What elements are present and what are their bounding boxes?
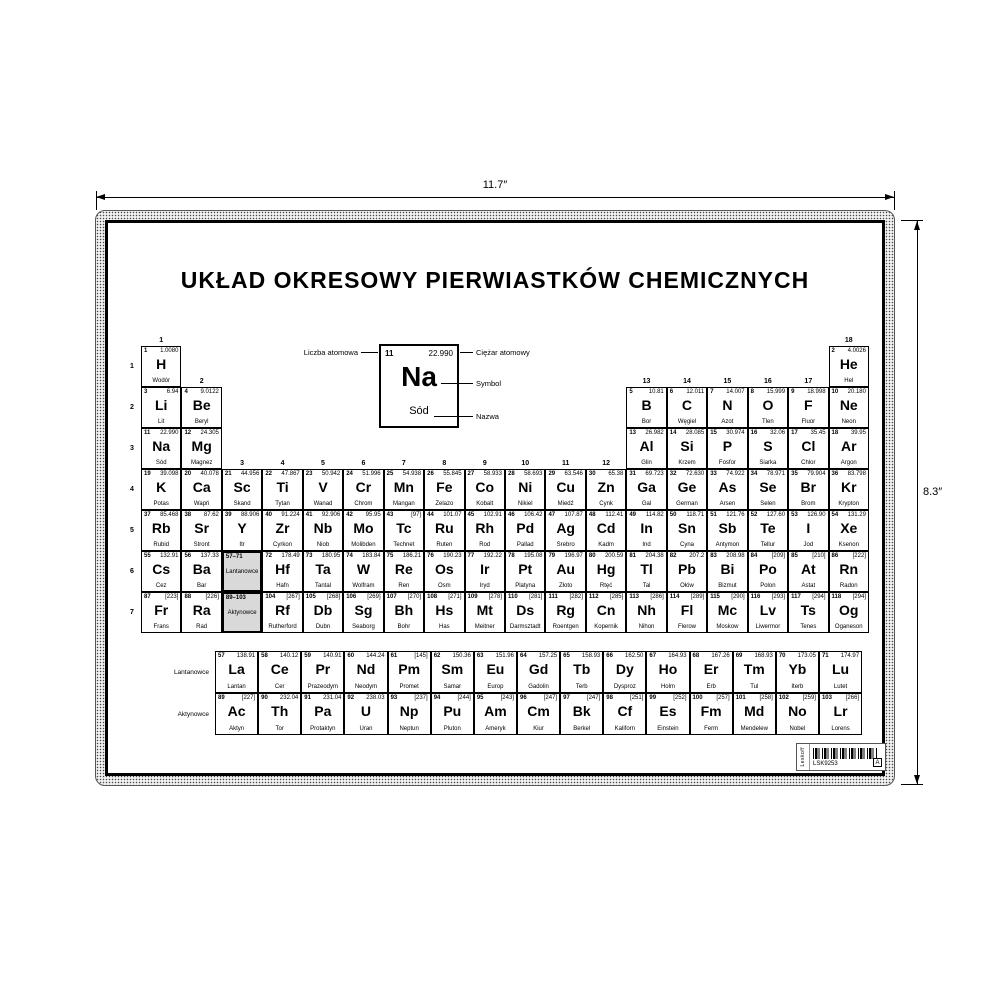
element-Pd: 46106.42PdPallad (505, 510, 545, 551)
atomic-mass: [270] (408, 594, 421, 601)
atomic-mass: [267] (286, 594, 299, 601)
element-name: Wodór (142, 377, 180, 386)
footer-label-box: Leskoff LSK9253 A (796, 743, 886, 771)
atomic-number: 112 (589, 594, 599, 601)
atomic-mass: [278] (489, 594, 502, 601)
element-name: Oganeson (830, 623, 868, 632)
element-name: Iryd (466, 582, 504, 591)
element-header: 53126.90 (789, 511, 827, 519)
element-name: Tellur (749, 541, 787, 550)
element-header: 48112.41 (587, 511, 625, 519)
element-symbol: Bk (561, 703, 602, 719)
element-header: 103[266] (820, 694, 861, 702)
element-symbol: Ce (259, 661, 300, 677)
element-Ho: 67164.93HoHolm (646, 651, 689, 693)
element-header: 94[244] (432, 694, 473, 702)
atomic-number: 27 (468, 471, 475, 478)
element-Gd: 64157.25GdGadolin (517, 651, 560, 693)
atomic-mass: 168.93 (754, 653, 772, 660)
atomic-number: 6 (670, 389, 673, 396)
atomic-number: 5 (629, 389, 632, 396)
element-symbol: H (142, 356, 180, 372)
element-header: 86[222] (830, 552, 868, 560)
element-symbol: Kr (830, 479, 868, 495)
atomic-number: 78 (508, 553, 515, 560)
atomic-mass: 58.693 (524, 471, 542, 478)
element-name: Dysproz (604, 683, 645, 692)
element-header: 65158.93 (561, 652, 602, 660)
element-Ir: 77192.22IrIryd (465, 551, 505, 592)
element-header: 89[227] (216, 694, 257, 702)
atomic-mass: [285] (610, 594, 623, 601)
element-header: 58140.12 (259, 652, 300, 660)
barcode (813, 748, 877, 759)
atomic-number: 98 (606, 695, 613, 702)
element-header: 102[259] (777, 694, 818, 702)
element-name: Prazeodym (302, 683, 343, 692)
element-In: 49114.82InInd (626, 510, 666, 551)
dimension-width-label: 11.7″ (455, 179, 535, 191)
element-symbol: Gd (518, 661, 559, 677)
atomic-mass: 74.922 (726, 471, 744, 478)
element-name: Neon (830, 418, 868, 427)
element-symbol: Es (647, 703, 688, 719)
series-row-aktynowce: Aktynowce89[227]AcAktyn90232.04ThTor9123… (128, 693, 862, 735)
element-symbol: Ge (668, 479, 706, 495)
element-symbol: W (344, 561, 382, 577)
group-number-9: 9 (465, 428, 505, 469)
atomic-number: 54 (832, 512, 839, 519)
atomic-number: 115 (710, 594, 720, 601)
group-number-6: 6 (343, 428, 383, 469)
element-name: Potas (142, 500, 180, 509)
element-name: Mangan (385, 500, 423, 509)
element-Zn: 3065.38ZnCynk (586, 469, 626, 510)
element-name: Platyna (506, 582, 544, 591)
element-Pb: 82207.2PbOłów (667, 551, 707, 592)
element-Tb: 65158.93TbTerb (560, 651, 603, 693)
element-symbol: Pd (506, 520, 544, 536)
element-symbol: Nd (345, 661, 386, 677)
element-symbol: Ac (216, 703, 257, 719)
element-symbol: Hs (425, 602, 463, 618)
atomic-mass: 174.97 (841, 653, 859, 660)
atomic-mass: 26.982 (645, 430, 663, 437)
element-Kr: 3683.798KrKrypton (829, 469, 869, 510)
atomic-number: 59 (304, 653, 311, 660)
element-symbol: Cu (546, 479, 584, 495)
element-symbol: Pm (389, 661, 430, 677)
atomic-mass: 131.29 (848, 512, 866, 519)
atomic-number: 49 (629, 512, 636, 519)
atomic-number: 64 (520, 653, 527, 660)
element-header: 24.0026 (830, 347, 868, 355)
element-name: Tenes (789, 623, 827, 632)
series-cells: 57138.91LaLantan58140.12CeCer59140.91PrP… (215, 651, 862, 693)
element-S: 1632.06SSiarka (748, 428, 788, 469)
element-Al: 1326.982AlGlin (626, 428, 666, 469)
atomic-mass: 140.12 (280, 653, 298, 660)
element-Au: 79196.97AuZłoto (545, 551, 585, 592)
atomic-mass: 85.468 (160, 512, 178, 519)
element-symbol: Cl (789, 438, 827, 454)
element-symbol: Cm (518, 703, 559, 719)
element-name: Ołów (668, 582, 706, 591)
element-Y: 3988.906YItr (222, 510, 262, 551)
atomic-number: 93 (391, 695, 398, 702)
atomic-mass: 54.938 (403, 471, 421, 478)
element-header: 3785.468 (142, 511, 180, 519)
element-Mo: 4295.95MoMolibden (343, 510, 383, 551)
element-name: Arsen (708, 500, 746, 509)
element-name: Tor (259, 725, 300, 734)
atomic-number: 30 (589, 471, 596, 478)
atomic-number: 88 (184, 594, 191, 601)
atomic-number: 22 (265, 471, 272, 478)
atomic-mass: 192.22 (484, 553, 502, 560)
element-name: Kaliforn (604, 725, 645, 734)
atomic-mass: 39.95 (851, 430, 866, 437)
atomic-number: 3 (144, 389, 147, 396)
element-symbol: Nh (627, 602, 665, 618)
atomic-mass: [247] (544, 695, 557, 702)
element-header: 3272.630 (668, 470, 706, 478)
element-symbol: Lv (749, 602, 787, 618)
element-header: 36.94 (142, 388, 180, 396)
element-symbol: Ni (506, 479, 544, 495)
atomic-mass: 51.996 (362, 471, 380, 478)
atomic-mass: 18.998 (807, 389, 825, 396)
element-name: Jod (789, 541, 827, 550)
atomic-number: 47 (548, 512, 555, 519)
element-Tc: 43[97]TcTechnet (384, 510, 424, 551)
element-Br: 3579.904BrBrom (788, 469, 828, 510)
element-name: Polon (749, 582, 787, 591)
element-symbol: Ne (830, 397, 868, 413)
brand-strip: Leskoff (797, 744, 810, 770)
element-name: Iterb (777, 683, 818, 692)
element-symbol: Sb (708, 520, 746, 536)
atomic-mass: 173.05 (798, 653, 816, 660)
element-name: Rtęć (587, 582, 625, 591)
element-header: 71174.97 (820, 652, 861, 660)
atomic-number: 53 (791, 512, 798, 519)
atomic-mass: [282] (570, 594, 583, 601)
element-header: 85[210] (789, 552, 827, 560)
element-symbol: Ar (830, 438, 868, 454)
atomic-number: 107 (387, 594, 397, 601)
atomic-number: 92 (347, 695, 354, 702)
element-Sm: 62150.36SmSamar (431, 651, 474, 693)
atomic-number: 106 (346, 594, 356, 601)
element-name: Itr (223, 541, 261, 550)
element-name: Kobalt (466, 500, 504, 509)
atomic-mass: 72.630 (686, 471, 704, 478)
element-name: Terb (561, 683, 602, 692)
element-symbol: He (830, 356, 868, 372)
element-Cf: 98[251]CfKaliforn (603, 693, 646, 735)
element-name: Promet (389, 683, 430, 692)
element-name: Lutet (820, 683, 861, 692)
element-name: Nikiel (506, 500, 544, 509)
element-Ts: 117[294]TsTenes (788, 592, 828, 633)
element-Bh: 107[270]BhBohr (384, 592, 424, 633)
element-header: 54131.29 (830, 511, 868, 519)
atomic-number: 13 (629, 430, 636, 437)
element-symbol: Be (182, 397, 220, 413)
element-header: 43[97] (385, 511, 423, 519)
group-number-7: 7 (384, 428, 424, 469)
element-symbol: Fm (691, 703, 732, 719)
element-Rf: 104[267]RfRutherford (262, 592, 302, 633)
extension-tick-left (96, 191, 97, 210)
element-symbol: Nb (304, 520, 342, 536)
element-symbol: S (749, 438, 787, 454)
atomic-number: 29 (548, 471, 555, 478)
page: 11.7″ 8.3″ UKŁAD OKRESOWY PIERWIASTKÓW C… (0, 0, 1000, 1000)
element-symbol: Po (749, 561, 787, 577)
element-Sn: 50118.71SnCyna (667, 510, 707, 551)
atomic-number: 75 (387, 553, 394, 560)
atomic-mass: [271] (448, 594, 461, 601)
element-name: Krypton (830, 500, 868, 509)
arrowhead-left-icon (96, 194, 105, 200)
atomic-number: 21 (225, 471, 232, 478)
element-Cr: 2451.996CrChrom (343, 469, 383, 510)
period-number-5: 5 (123, 510, 141, 551)
element-header: 106[269] (344, 593, 382, 601)
element-He: 24.0026HeHel (829, 346, 869, 387)
element-symbol: Eu (475, 661, 516, 677)
element-header: 2963.546 (546, 470, 584, 478)
element-name: Wanad (304, 500, 342, 509)
element-Og: 118[294]OgOganeson (829, 592, 869, 633)
atomic-mass: [145] (414, 653, 427, 660)
atomic-number: 90 (261, 695, 268, 702)
atomic-number: 96 (520, 695, 527, 702)
element-header: 67164.93 (647, 652, 688, 660)
atomic-mass: 9.0122 (201, 389, 219, 396)
element-symbol: P (708, 438, 746, 454)
atomic-mass: 10.81 (649, 389, 664, 396)
element-name: Skand (223, 500, 261, 509)
atomic-mass: [294] (853, 594, 866, 601)
atomic-mass: [294] (812, 594, 825, 601)
element-symbol: Fe (425, 479, 463, 495)
placeholder-aktynowce: 89–103Aktynowce (222, 592, 262, 633)
element-As: 3374.922AsArsen (707, 469, 747, 510)
barcode-code: LSK9253 (813, 761, 838, 767)
element-Ds: 110[281]DsDarmsztadt (505, 592, 545, 633)
element-name: Beryl (182, 418, 220, 427)
element-H: 11.0080HWodór (141, 346, 181, 387)
element-Re: 75186.21ReRen (384, 551, 424, 592)
element-name: Aktyn (216, 725, 257, 734)
atomic-number: 65 (563, 653, 570, 660)
element-Ga: 3169.723GaGal (626, 469, 666, 510)
element-symbol: Na (142, 438, 180, 454)
element-header: 2451.996 (344, 470, 382, 478)
element-Si: 1428.085SiKrzem (667, 428, 707, 469)
atomic-number: 84 (751, 553, 758, 560)
element-name: Stront (182, 541, 220, 550)
group-number-1: 1 (141, 331, 181, 346)
element-Na: 1122.990NaSód (141, 428, 181, 469)
element-symbol: U (345, 703, 386, 719)
revision-marker: A (873, 758, 882, 767)
atomic-number: 19 (144, 471, 151, 478)
element-name: Węgiel (668, 418, 706, 427)
element-name: Rod (466, 541, 504, 550)
element-header: 50118.71 (668, 511, 706, 519)
element-Mt: 109[278]MtMeitner (465, 592, 505, 633)
element-symbol: C (668, 397, 706, 413)
element-header: 61[145] (389, 652, 430, 660)
element-Th: 90232.04ThTor (258, 693, 301, 735)
atomic-mass: 24.305 (201, 430, 219, 437)
atomic-mass: 14.007 (726, 389, 744, 396)
atomic-number: 12 (184, 430, 191, 437)
element-At: 85[210]AtAstat (788, 551, 828, 592)
atomic-mass: 55.845 (443, 471, 461, 478)
element-name: Siarka (749, 459, 787, 468)
placeholder-range: 57–71 (224, 553, 260, 560)
element-name: Lantan (216, 683, 257, 692)
element-header: 117[294] (789, 593, 827, 601)
element-symbol: At (789, 561, 827, 577)
element-symbol: Br (789, 479, 827, 495)
element-name: Molibden (344, 541, 382, 550)
element-C: 612.011CWęgiel (667, 387, 707, 428)
atomic-number: 118 (832, 594, 842, 601)
atomic-mass: [258] (759, 695, 772, 702)
atomic-mass: 39.098 (160, 471, 178, 478)
element-Tm: 69168.93TmTul (733, 651, 776, 693)
element-name: Ferm (691, 725, 732, 734)
element-header: 90232.04 (259, 694, 300, 702)
element-name: Chlor (789, 459, 827, 468)
element-symbol: Cr (344, 479, 382, 495)
atomic-number: 66 (606, 653, 613, 660)
element-name: Cynk (587, 500, 625, 509)
atomic-number: 102 (779, 695, 789, 702)
element-name: Cyrkon (263, 541, 301, 550)
atomic-mass: 32.06 (770, 430, 785, 437)
element-Ag: 47107.87AgSrebro (545, 510, 585, 551)
atomic-number: 15 (710, 430, 717, 437)
element-name: Ind (627, 541, 665, 550)
element-name: Bizmut (708, 582, 746, 591)
element-Hg: 80200.59HgRtęć (586, 551, 626, 592)
element-symbol: Ag (546, 520, 584, 536)
element-header: 88[226] (182, 593, 220, 601)
element-symbol: Sr (182, 520, 220, 536)
element-Co: 2758.933CoKobalt (465, 469, 505, 510)
element-symbol: Rg (546, 602, 584, 618)
element-symbol: Mt (466, 602, 504, 618)
element-Dy: 66162.50DyDysproz (603, 651, 646, 693)
element-header: 1530.974 (708, 429, 746, 437)
atomic-mass: 157.25 (539, 653, 557, 660)
element-Fm: 100[257]FmFerm (690, 693, 733, 735)
element-name: Tytan (263, 500, 301, 509)
element-header: 52127.60 (749, 511, 787, 519)
element-symbol: Li (142, 397, 180, 413)
element-header: 3683.798 (830, 470, 868, 478)
atomic-mass: [210] (812, 553, 825, 560)
atomic-number: 69 (736, 653, 743, 660)
element-header: 64157.25 (518, 652, 559, 660)
element-header: 2350.942 (304, 470, 342, 478)
element-symbol: Cs (142, 561, 180, 577)
element-symbol: Th (259, 703, 300, 719)
atomic-number: 99 (649, 695, 656, 702)
element-header: 95[243] (475, 694, 516, 702)
element-name: Astat (789, 582, 827, 591)
element-Nb: 4192.906NbNiob (303, 510, 343, 551)
element-symbol: Sg (344, 602, 382, 618)
atomic-number: 32 (670, 471, 677, 478)
atomic-number: 40 (265, 512, 272, 519)
group-number-4: 4 (262, 428, 302, 469)
placeholder-label: Lantanowce (224, 569, 260, 575)
atomic-mass: 30.974 (726, 430, 744, 437)
group-number-11: 11 (545, 428, 585, 469)
atomic-number: 34 (751, 471, 758, 478)
atomic-number: 73 (306, 553, 313, 560)
element-name: Ameryk (475, 725, 516, 734)
element-header: 97[247] (561, 694, 602, 702)
atomic-number: 7 (710, 389, 713, 396)
element-symbol: Rf (263, 602, 301, 618)
element-Nh: 113[286]NhNihon (626, 592, 666, 633)
element-Os: 76190.23OsOsm (424, 551, 464, 592)
brand-name: Leskoff (800, 747, 806, 767)
element-symbol: Md (734, 703, 775, 719)
atomic-mass: 127.60 (767, 512, 785, 519)
element-name: Magnez (182, 459, 220, 468)
element-name: Fosfor (708, 459, 746, 468)
atomic-number: 89 (218, 695, 225, 702)
element-name: Glin (627, 459, 665, 468)
atomic-mass: [252] (673, 695, 686, 702)
element-Ce: 58140.12CeCer (258, 651, 301, 693)
atomic-number: 11 (144, 430, 150, 437)
element-symbol: Er (691, 661, 732, 677)
atomic-mass: 178.49 (281, 553, 299, 560)
element-name: Nobel (777, 725, 818, 734)
atomic-mass: 91.224 (281, 512, 299, 519)
atomic-number: 37 (144, 512, 151, 519)
element-symbol: Lu (820, 661, 861, 677)
atomic-mass: [226] (206, 594, 219, 601)
atomic-number: 62 (434, 653, 441, 660)
element-Pm: 61[145]PmPromet (388, 651, 431, 693)
period-number-4: 4 (123, 469, 141, 510)
element-name: Krzem (668, 459, 706, 468)
element-header: 66162.50 (604, 652, 645, 660)
element-Rb: 3785.468RbRubid (141, 510, 181, 551)
element-symbol: N (708, 397, 746, 413)
element-name: Azot (708, 418, 746, 427)
atomic-mass: 200.59 (605, 553, 623, 560)
element-symbol: Am (475, 703, 516, 719)
group-number-15: 15 (707, 346, 747, 387)
atomic-mass: 101.07 (443, 512, 461, 519)
element-Ca: 2040.078CaWapń (181, 469, 221, 510)
element-header: 1735.45 (789, 429, 827, 437)
element-header: 612.011 (668, 388, 706, 396)
